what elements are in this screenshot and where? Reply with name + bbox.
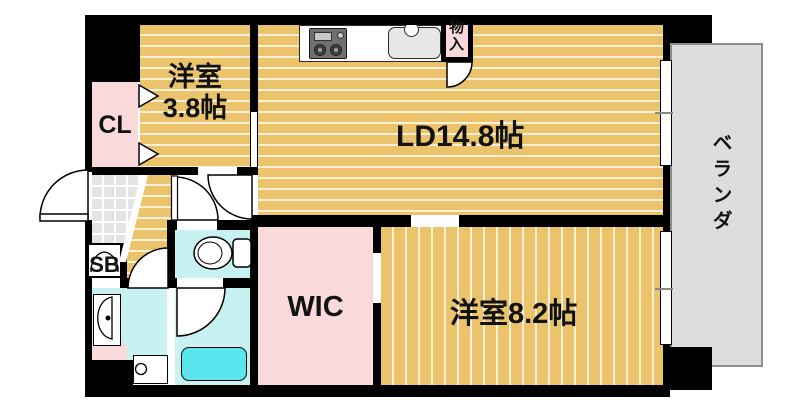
wall-top <box>85 15 670 25</box>
wall-small-room-right <box>250 15 258 112</box>
veranda-label: ベランダ <box>706 132 735 236</box>
floor-plan: 洋室 3.8帖 LD14.8帖 洋室8.2帖 WIC CL SB 物入 ベランダ <box>0 0 800 409</box>
stove-grill <box>314 32 332 41</box>
wall-ld-bottom <box>250 215 670 227</box>
storage-label: 物入 <box>448 19 463 53</box>
vestibule-area <box>175 175 250 220</box>
washing-machine-space <box>133 355 168 384</box>
toilet-room-area <box>175 230 250 278</box>
room-western-small-label: 洋室 3.8帖 <box>140 62 250 124</box>
wall-mid-vertical <box>250 215 258 397</box>
room-ld-label: LD14.8帖 <box>396 111 524 155</box>
stove-burner-right <box>330 44 342 56</box>
opening-wic-western-large <box>373 253 381 303</box>
entrance-opening <box>85 172 92 220</box>
washbasin-counter <box>93 294 121 346</box>
room-western-small-label-line1: 洋室 <box>140 62 250 93</box>
window-ld <box>660 60 672 166</box>
sliding-door-small-room-ld <box>250 112 258 167</box>
entrance-door <box>40 170 88 221</box>
wall-top-left-block <box>85 15 140 82</box>
bathroom-door-opening <box>177 278 223 288</box>
bathtub <box>181 347 247 381</box>
stove-icon <box>309 28 347 59</box>
wic-label: WIC <box>258 291 373 324</box>
stove-knob <box>337 32 344 39</box>
washroom-door-opening <box>133 278 168 288</box>
wall-bottom <box>127 385 670 397</box>
window-western-large <box>660 231 672 345</box>
room-western-large-label: 洋室8.2帖 <box>450 290 577 332</box>
shoe-box-label: SB <box>86 252 123 278</box>
wall-top-right-block <box>668 15 712 43</box>
wall-bottom-right-block <box>668 347 712 390</box>
room-western-small-label-line2: 3.8帖 <box>140 93 250 124</box>
closet-label: CL <box>92 111 138 140</box>
sliding-door-ld-western-large <box>410 215 460 227</box>
toilet-door-opening <box>177 220 217 230</box>
stove-burner-left <box>314 44 326 56</box>
small-room-door-opening <box>198 167 237 175</box>
wall-bottom-left-block <box>85 360 133 397</box>
